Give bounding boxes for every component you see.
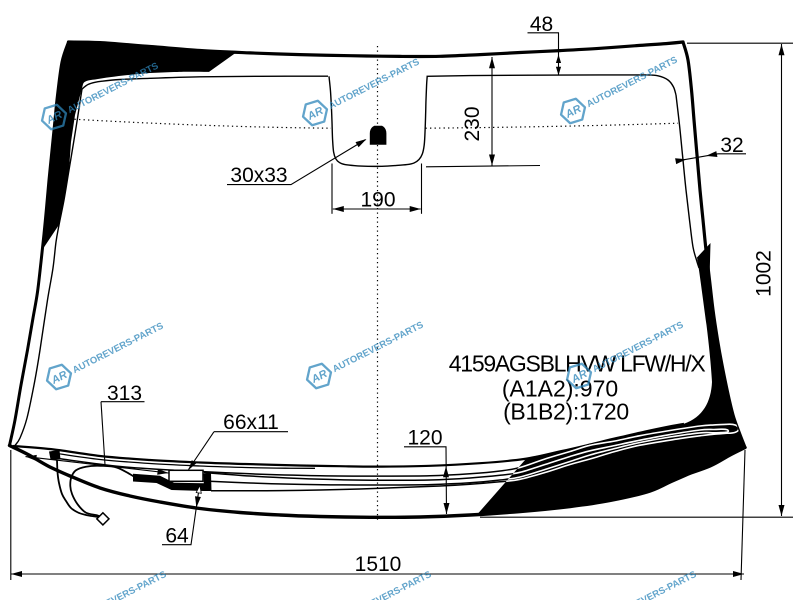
- svg-text:(B1B2):1720: (B1B2):1720: [503, 399, 629, 425]
- svg-text:1002: 1002: [753, 250, 776, 297]
- svg-text:190: 190: [360, 189, 395, 212]
- svg-text:230: 230: [461, 106, 484, 141]
- svg-text:1510: 1510: [355, 553, 402, 576]
- svg-text:120: 120: [407, 427, 442, 450]
- svg-text:66x11: 66x11: [223, 411, 279, 434]
- svg-text:30x33: 30x33: [230, 164, 287, 187]
- svg-text:(A1A2):970: (A1A2):970: [502, 375, 618, 401]
- svg-text:64: 64: [165, 525, 189, 548]
